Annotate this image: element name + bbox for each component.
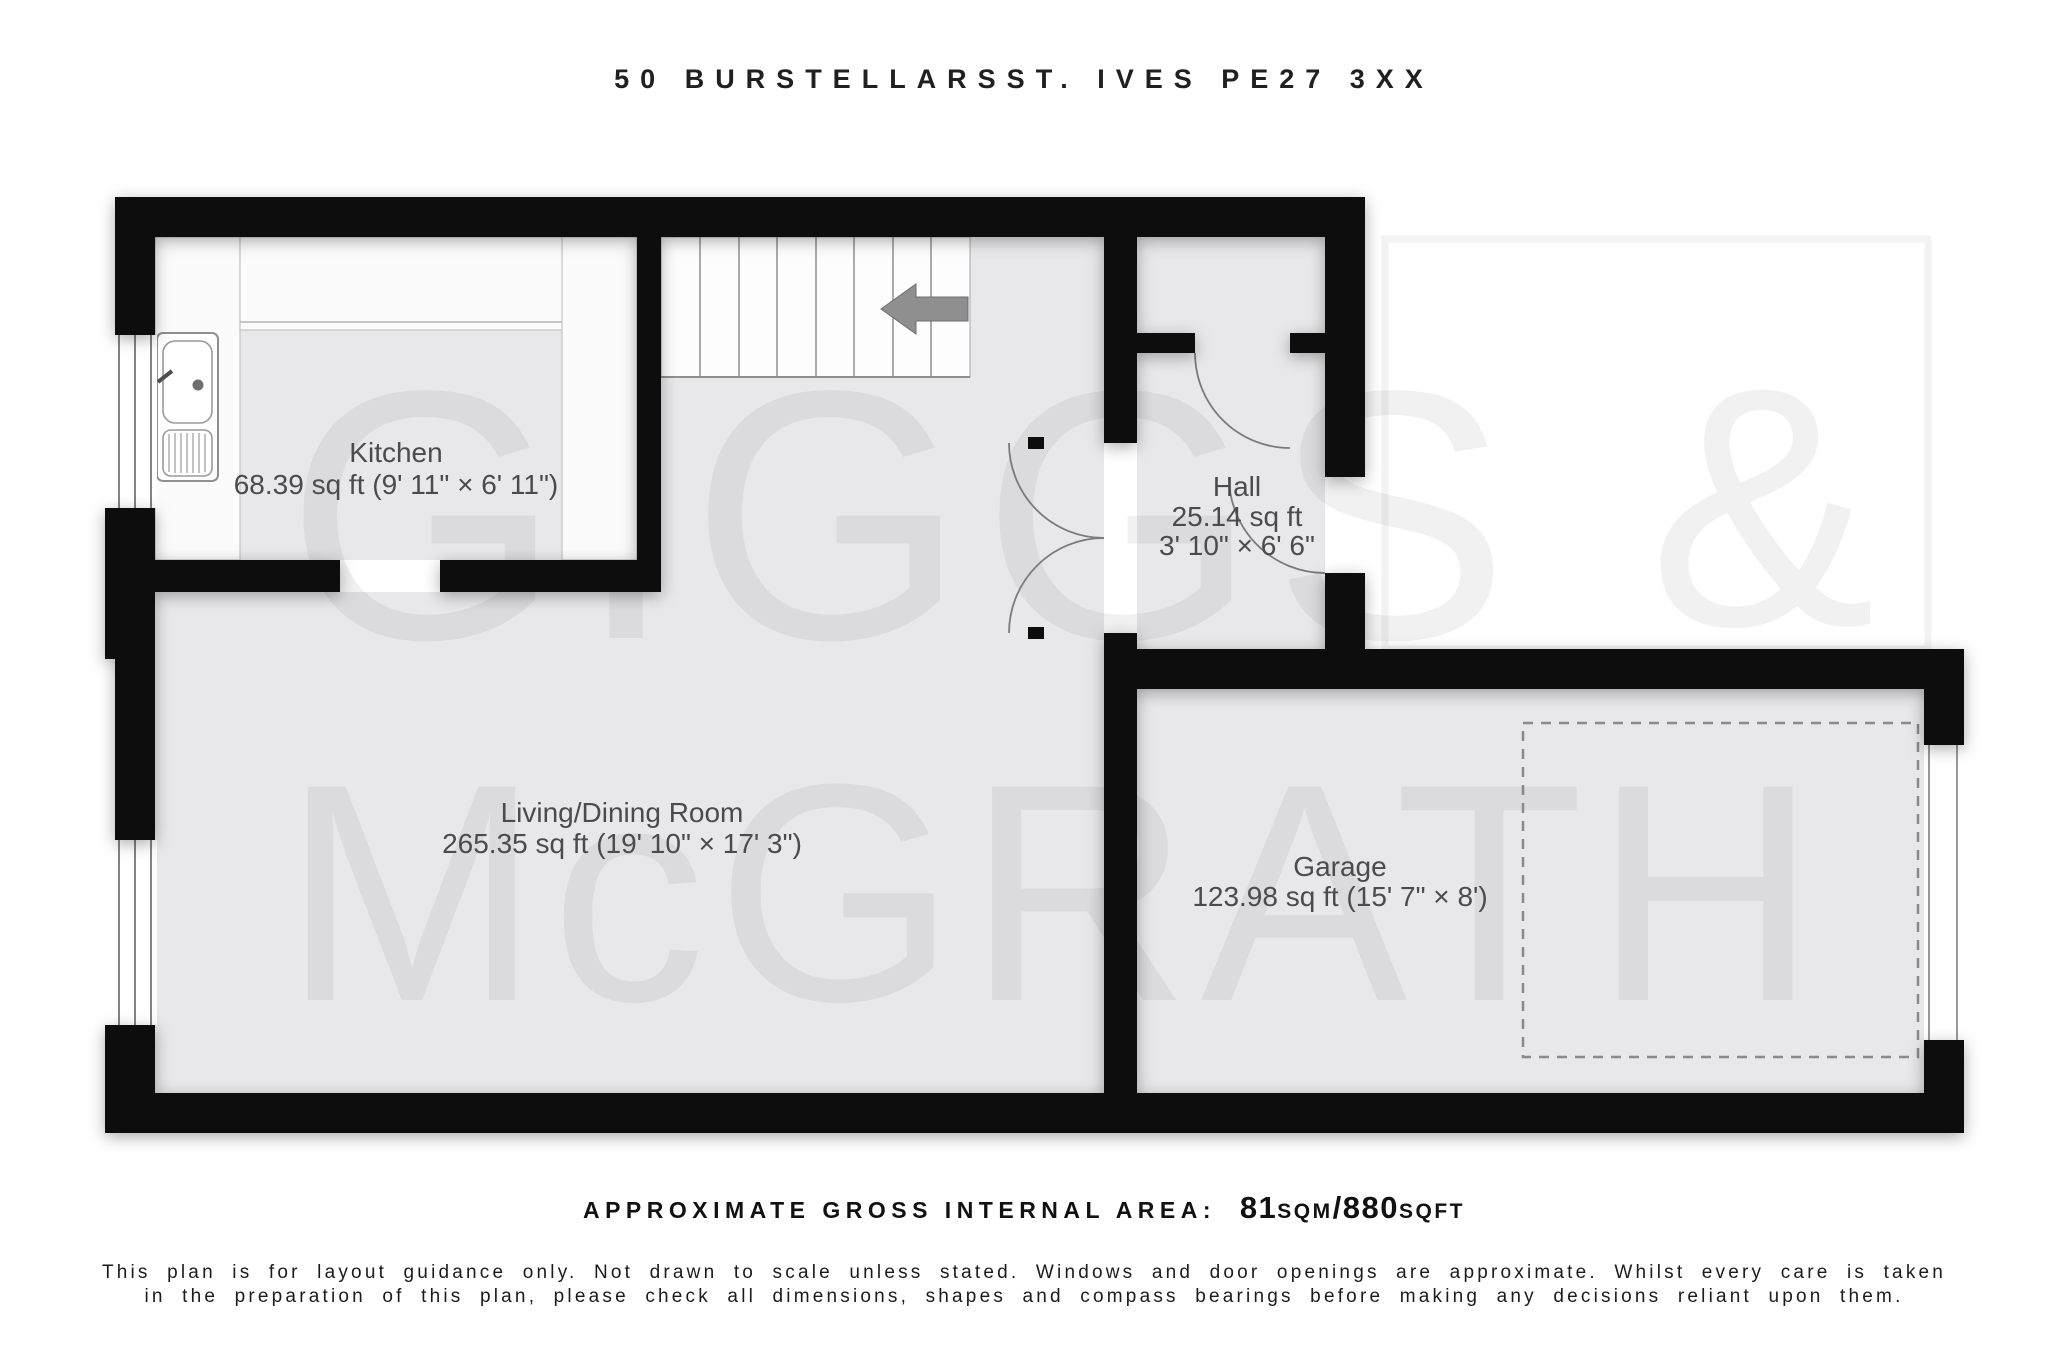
wall-bottom — [115, 1093, 1964, 1133]
wall-left-segment — [105, 508, 155, 659]
staircase — [661, 237, 970, 377]
wall-right-lower — [1325, 573, 1365, 649]
area-sqft-unit: SQFT — [1399, 1200, 1465, 1223]
wall-garage-left — [1104, 633, 1137, 1133]
wall-vestibule-stub — [1290, 333, 1325, 353]
wall-kitchen-stairs — [637, 237, 661, 592]
wall-left-segment — [115, 237, 155, 335]
watermark-word2: McGRATH — [282, 719, 1827, 1066]
wall-garage-right-upper — [1924, 649, 1964, 745]
wall-top — [115, 197, 1365, 237]
sink-basin — [163, 341, 212, 423]
kitchen-window — [113, 335, 157, 508]
disclaimer-line1: This plan is for layout guidance only. N… — [0, 1261, 2048, 1285]
area-separator: / — [1333, 1190, 1343, 1225]
wall-garage-right-lower — [1924, 1040, 1964, 1133]
hall-label: Hall — [1213, 471, 1261, 502]
kitchen-counter-right — [562, 237, 637, 560]
wall-right-upper — [1325, 237, 1365, 477]
living-room-dims: 265.35 sq ft (19' 10" × 17' 3") — [442, 828, 802, 859]
kitchen-sink — [157, 333, 218, 481]
door-leaf-stub — [1028, 437, 1044, 449]
living-room-label: Living/Dining Room — [501, 797, 744, 828]
wall-kitchen-bottom — [440, 560, 661, 592]
area-sqft-value: 880 — [1343, 1190, 1399, 1225]
disclaimer: This plan is for layout guidance only. N… — [0, 1261, 2048, 1309]
wall-left-segment — [115, 659, 155, 840]
wall-kitchen-bottom — [155, 560, 340, 592]
area-sqm-unit: SQM — [1277, 1200, 1332, 1223]
sink-drain — [193, 380, 204, 391]
hall-area: 25.14 sq ft — [1172, 501, 1303, 532]
watermark-ampersand: & — [1649, 318, 1876, 698]
wall-hall-left-upper — [1104, 237, 1137, 443]
wall-garage-top — [1104, 649, 1964, 689]
gross-internal-area: APPROXIMATE GROSS INTERNAL AREA: 81SQM/8… — [0, 1190, 2048, 1226]
garage-dims: 123.98 sq ft (15' 7" × 8') — [1192, 881, 1487, 912]
door-leaf-stub — [1028, 627, 1044, 639]
floorplan-page: 50 BURSTELLARSST. IVES PE27 3XX GIGGS & … — [0, 0, 2048, 1365]
kitchen-label: Kitchen — [349, 437, 442, 468]
living-room-window — [113, 840, 157, 1025]
floor-plan: GIGGS & McGRATH — [0, 0, 2048, 1365]
hall-dims: 3' 10" × 6' 6" — [1159, 530, 1315, 561]
area-label: APPROXIMATE GROSS INTERNAL AREA: — [583, 1197, 1216, 1223]
kitchen-dims: 68.39 sq ft (9' 11" × 6' 11") — [234, 469, 559, 500]
garage-label: Garage — [1293, 851, 1386, 882]
wall-vestibule-stub — [1137, 333, 1195, 353]
disclaimer-line2: in the preparation of this plan, please … — [0, 1285, 2048, 1309]
area-sqm-value: 81 — [1240, 1190, 1277, 1225]
